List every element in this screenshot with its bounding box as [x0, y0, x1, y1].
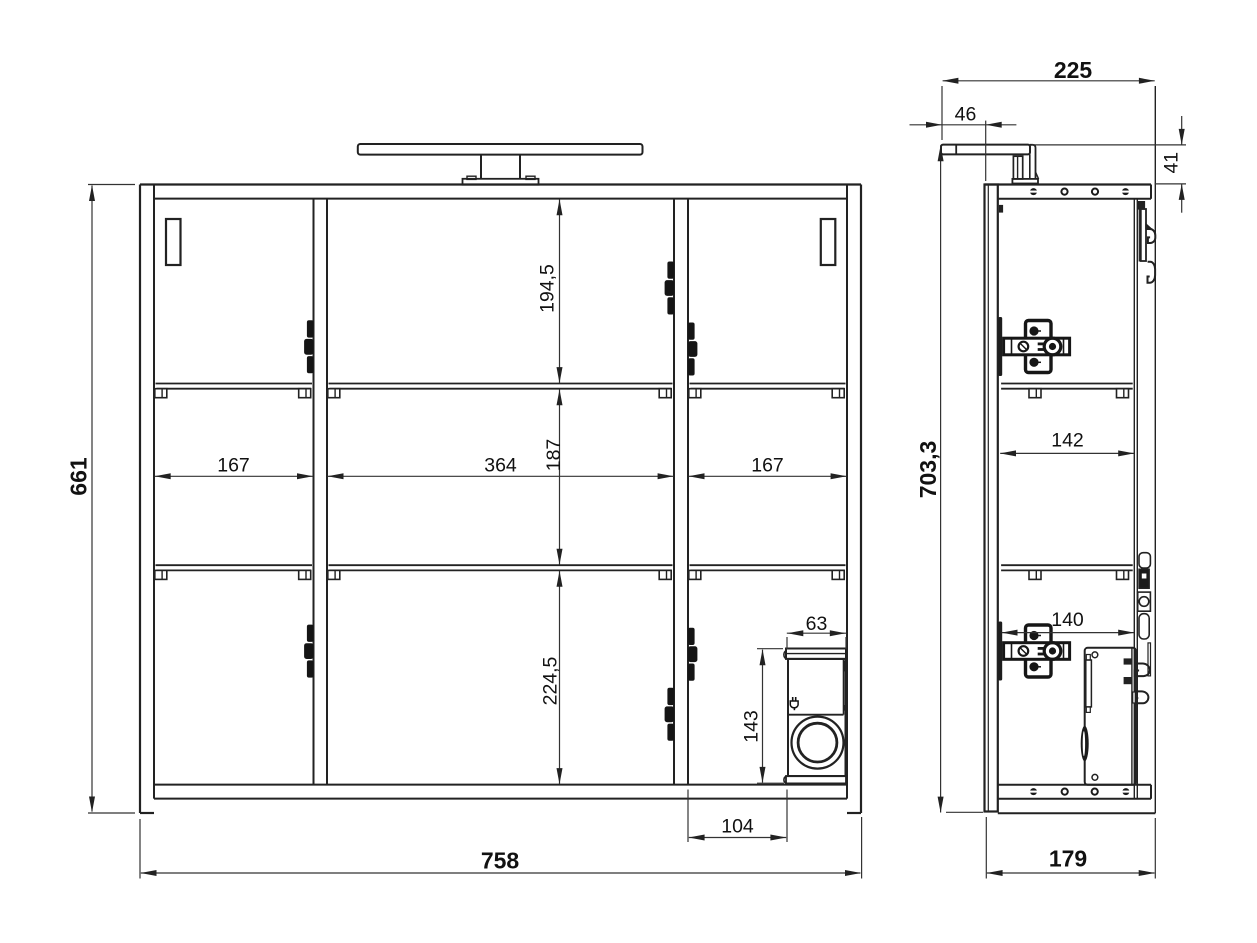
svg-text:46: 46: [955, 103, 977, 125]
svg-text:703,3: 703,3: [915, 441, 941, 499]
svg-text:167: 167: [751, 455, 784, 477]
svg-text:104: 104: [721, 816, 754, 838]
svg-text:194,5: 194,5: [537, 264, 559, 313]
svg-text:661: 661: [65, 457, 91, 496]
svg-text:187: 187: [543, 439, 565, 472]
svg-text:758: 758: [481, 848, 520, 874]
svg-text:179: 179: [1049, 846, 1087, 872]
svg-text:140: 140: [1051, 609, 1084, 631]
svg-text:41: 41: [1161, 152, 1183, 174]
svg-text:143: 143: [741, 710, 763, 743]
svg-text:63: 63: [806, 613, 828, 635]
svg-text:167: 167: [217, 455, 250, 477]
svg-text:225: 225: [1054, 57, 1093, 83]
svg-text:224,5: 224,5: [540, 656, 562, 705]
svg-text:364: 364: [484, 455, 517, 477]
svg-text:142: 142: [1051, 430, 1084, 452]
